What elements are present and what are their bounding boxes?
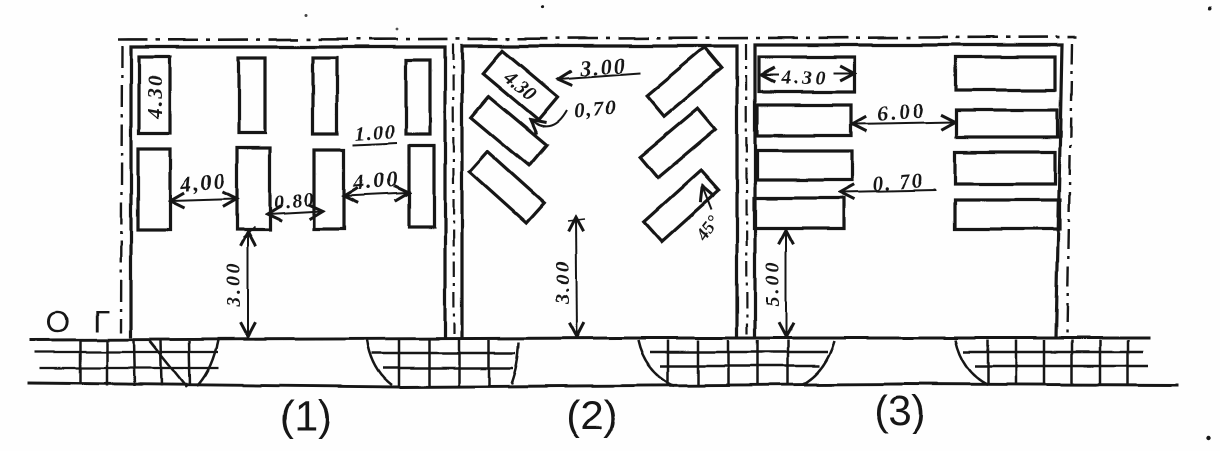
svg-text:5.00: 5.00 xyxy=(762,260,784,307)
svg-text:45°: 45° xyxy=(691,212,723,246)
svg-text:1.00: 1.00 xyxy=(354,121,396,146)
svg-text:(2): (2) xyxy=(566,392,617,439)
svg-text:4.30: 4.30 xyxy=(781,67,829,89)
svg-text:0.80: 0.80 xyxy=(273,188,316,213)
svg-text:6.00: 6.00 xyxy=(876,98,926,125)
svg-text:(1): (1) xyxy=(280,392,331,439)
svg-text:4.00: 4.00 xyxy=(351,166,400,195)
svg-text:О Г: О Г xyxy=(46,304,117,339)
svg-text:3.00: 3.00 xyxy=(223,261,245,309)
svg-text:4.30: 4.30 xyxy=(499,65,541,105)
svg-text:4,00: 4,00 xyxy=(178,168,227,197)
svg-text:0,70: 0,70 xyxy=(573,96,617,123)
svg-text:(3): (3) xyxy=(874,387,925,434)
svg-text:3.00: 3.00 xyxy=(552,261,574,305)
svg-text:4.30: 4.30 xyxy=(143,74,167,120)
